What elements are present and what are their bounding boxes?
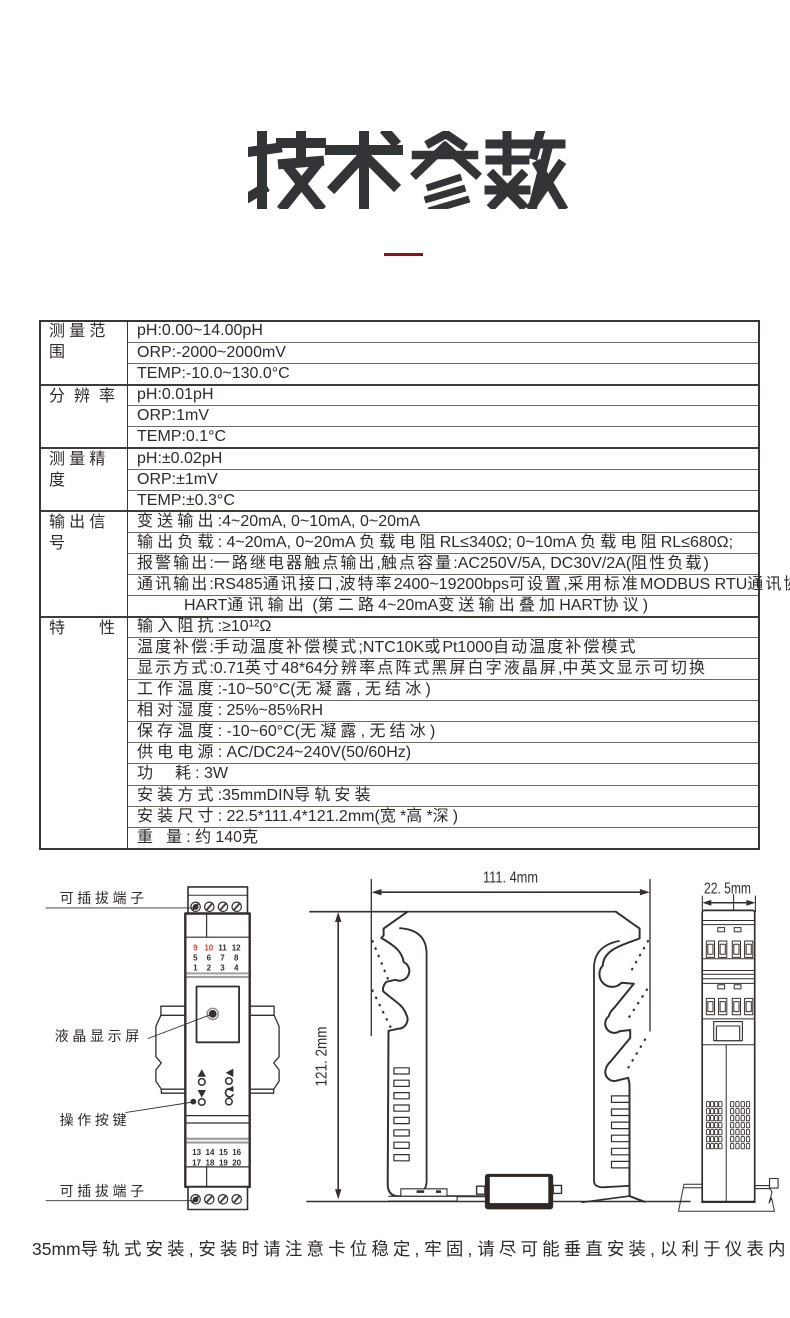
svg-text:18: 18 [206,1158,215,1167]
svg-text:10: 10 [204,943,213,952]
svg-text:9: 9 [193,943,198,952]
svg-text:11: 11 [218,943,227,952]
svg-text:22. 5mm: 22. 5mm [704,881,751,898]
svg-text:13: 13 [192,1148,201,1157]
svg-text:7: 7 [220,954,225,963]
svg-text:8: 8 [234,954,239,963]
svg-text:16: 16 [232,1148,241,1157]
svg-text:4: 4 [234,964,239,973]
svg-text:111. 4mm: 111. 4mm [483,870,538,887]
svg-text:1: 1 [193,964,198,973]
svg-text:6: 6 [207,954,212,963]
svg-text:14: 14 [206,1148,215,1157]
svg-text:20: 20 [232,1158,241,1167]
svg-text:15: 15 [219,1148,228,1157]
svg-text:121. 2mm: 121. 2mm [314,1027,331,1087]
svg-text:5: 5 [193,954,198,963]
svg-text:2: 2 [207,964,212,973]
svg-text:19: 19 [219,1158,228,1167]
svg-text:12: 12 [232,943,241,952]
svg-text:17: 17 [192,1158,201,1167]
svg-text:3: 3 [220,964,225,973]
